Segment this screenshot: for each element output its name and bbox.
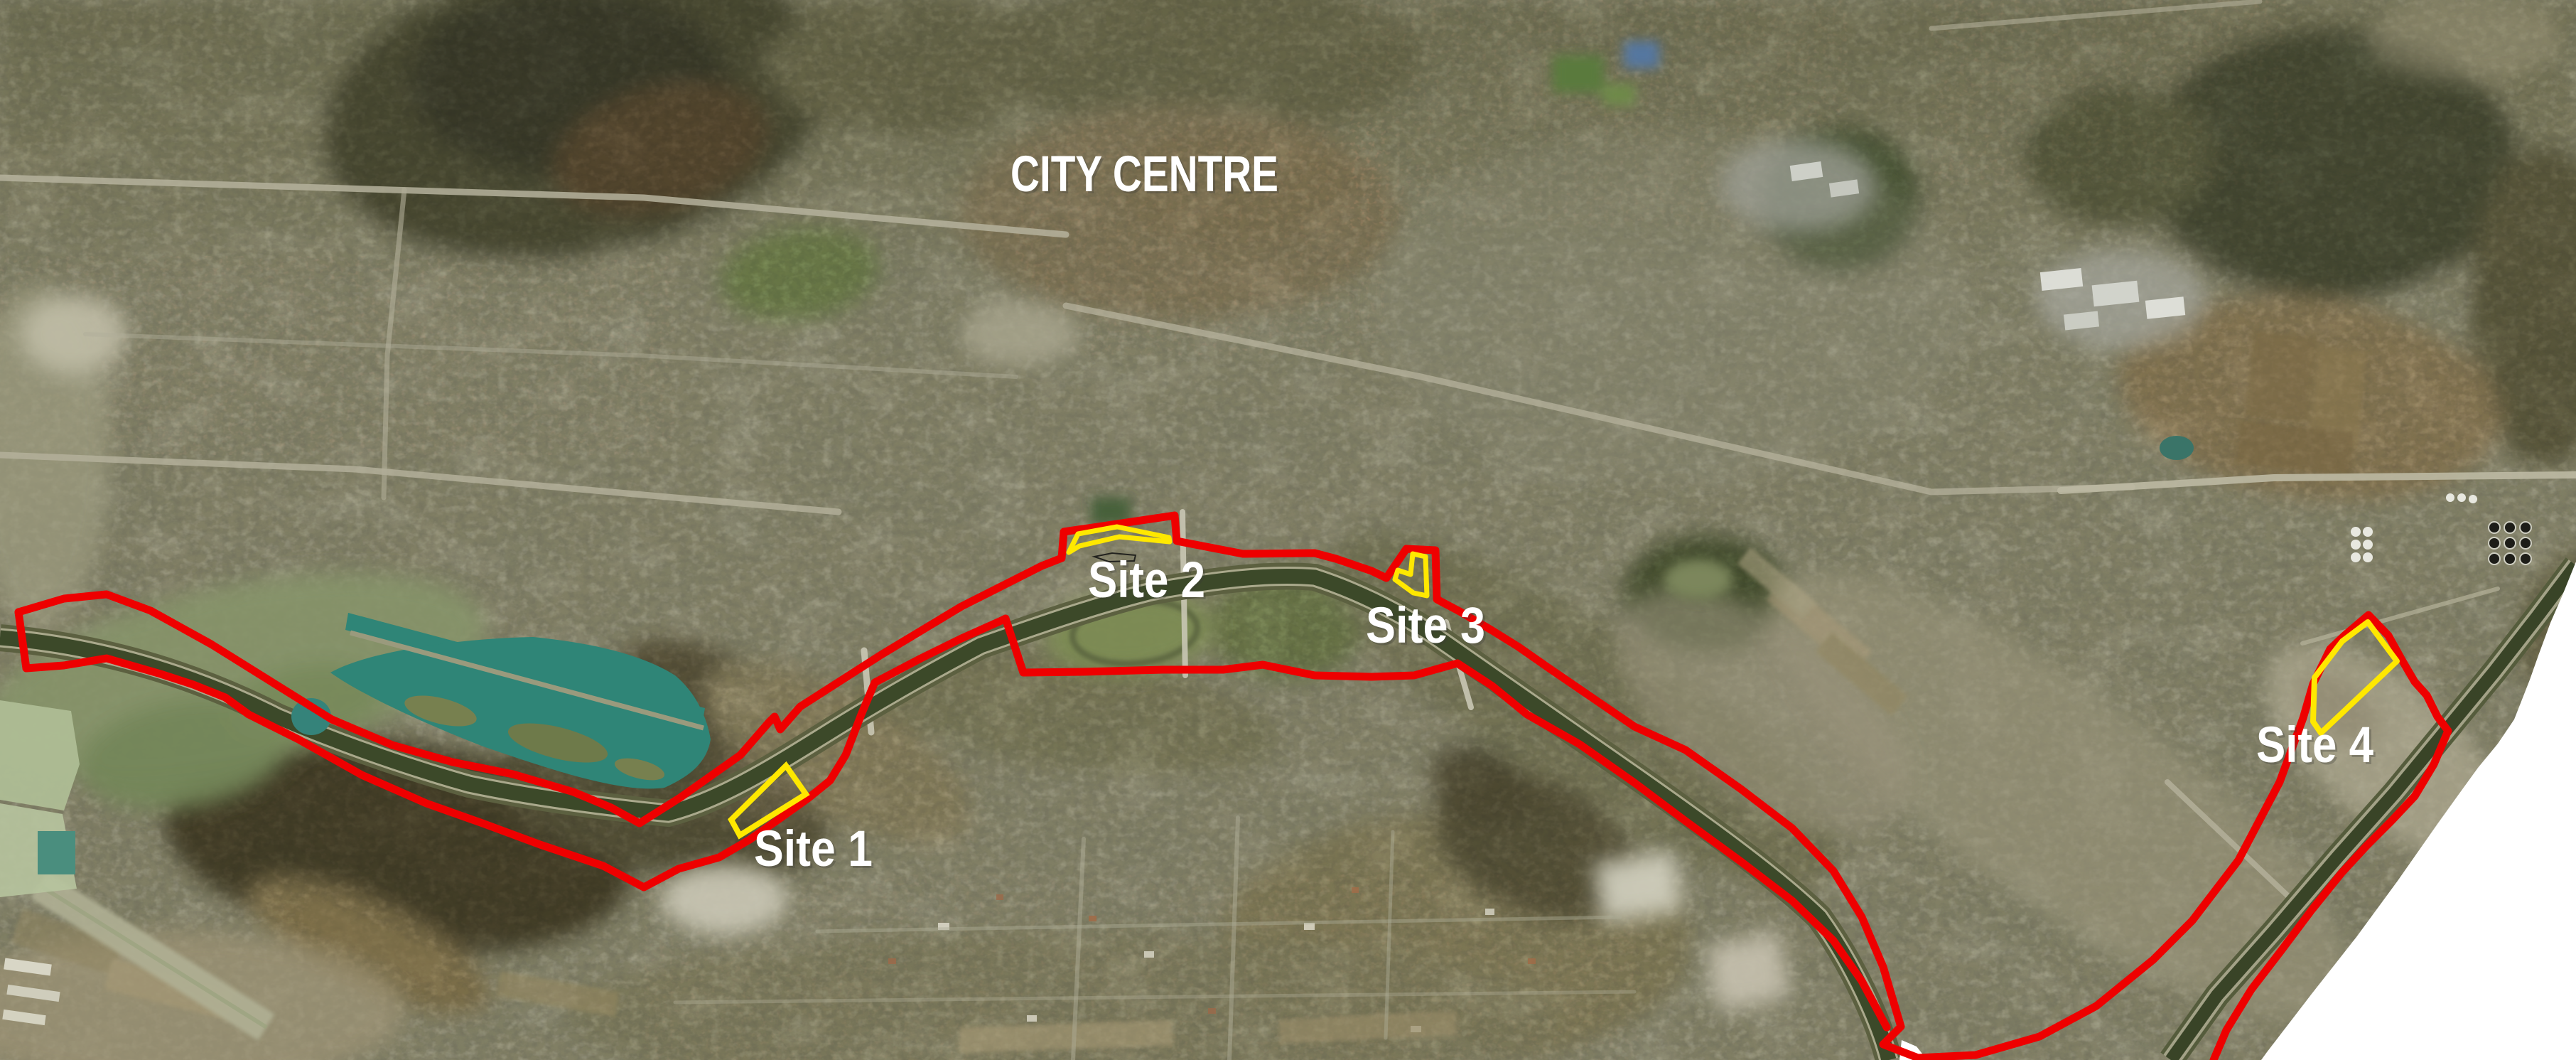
svg-text:CITY CENTRE: CITY CENTRE — [1011, 146, 1278, 203]
svg-text:Site 3: Site 3 — [1366, 598, 1485, 654]
svg-text:Site 2: Site 2 — [1088, 552, 1205, 609]
svg-text:Site 4: Site 4 — [2256, 717, 2373, 773]
svg-text:Site 1: Site 1 — [754, 821, 873, 877]
